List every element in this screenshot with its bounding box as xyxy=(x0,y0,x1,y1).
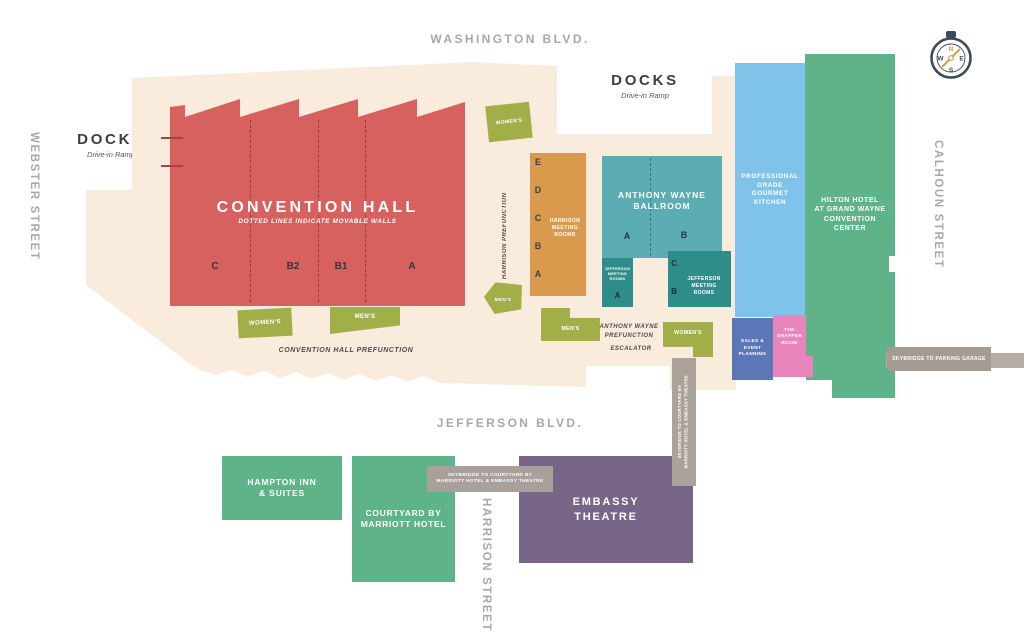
ballroom-section-b: B xyxy=(672,230,696,240)
womens-restroom-label: WOMEN'S xyxy=(495,117,522,127)
skybridge-courtyard-label: SKYBRIDGE TO COURTYARD BY MARRIOTT HOTEL… xyxy=(437,473,544,486)
kitchen-label: PROFESSIONAL GRADE GOURMET KITCHEN xyxy=(741,173,798,207)
gourmet-kitchen: PROFESSIONAL GRADE GOURMET KITCHEN xyxy=(735,63,805,317)
dock-tick xyxy=(161,165,183,167)
mens-restroom-label: MEN'S xyxy=(561,316,579,333)
ballroom-prefunction-label: ANTHONY WAYNE PREFUNCTION xyxy=(589,323,669,341)
sales-event-planning: SALES & EVENT PLANNING xyxy=(732,318,773,380)
womens-restroom-label: WOMEN'S xyxy=(249,318,281,328)
ballroom-title: ANTHONY WAYNE BALLROOM xyxy=(602,190,722,213)
embassy-theatre-label: EMBASSY THEATRE xyxy=(573,495,640,525)
jefferson-rooms-label: JEFFERSON MEETING ROOMS xyxy=(680,276,728,296)
hampton-inn: HAMPTON INN & SUITES xyxy=(222,456,342,520)
street-harrison: HARRISON STREET xyxy=(480,498,492,633)
skybridge-parking-label-box: SKYBRIDGE TO PARKING GARAGE xyxy=(887,347,991,371)
womens-restroom-label: WOMEN'S xyxy=(674,330,702,349)
docks-top-subtitle: Drive-in Ramp xyxy=(595,91,695,100)
hall-section-a: A xyxy=(397,261,427,272)
harrison-room-a: A xyxy=(531,269,545,279)
jefferson-room-a: A xyxy=(602,291,633,300)
hampton-inn-label: HAMPTON INN & SUITES xyxy=(247,477,316,500)
convention-hall-subtitle: DOTTED LINES INDICATE MOVABLE WALLS xyxy=(170,218,465,227)
courtyard-marriott-label: COURTYARD BY MARRIOTT HOTEL xyxy=(361,508,447,531)
skybridge-courtyard-label-box: SKYBRIDGE TO COURTYARD BY MARRIOTT HOTEL… xyxy=(427,466,553,492)
street-washington-blvd: WASHINGTON BLVD. xyxy=(420,32,600,46)
compass-w: W xyxy=(937,56,944,63)
shaffer-room-label: THE SHAFFER ROOM xyxy=(773,328,806,347)
convention-hall-prefunction-label: CONVENTION HALL PREFUNCTION xyxy=(246,347,446,354)
harrison-room-b: B xyxy=(531,241,545,251)
street-jefferson-blvd: JEFFERSON BLVD. xyxy=(430,416,590,430)
docks-top-title: DOCKS xyxy=(595,72,695,89)
skybridge-embassy-label: SKYBRIDGE TO COURTYARD BY MARRIOTT HOTEL… xyxy=(677,375,690,468)
hilton-label: HILTON HOTEL AT GRAND WAYNE CONVENTION C… xyxy=(806,196,894,234)
street-calhoun: CALHOUN STREET xyxy=(932,140,944,290)
mens-restroom-label: MEN'S xyxy=(355,313,376,327)
hall-section-b2: B2 xyxy=(278,261,308,272)
docks-top: DOCKS Drive-in Ramp xyxy=(595,72,695,100)
jefferson-room-b: B xyxy=(667,287,681,296)
hall-section-c: C xyxy=(200,261,230,272)
womens-restroom-hall: WOMEN'S xyxy=(237,308,292,339)
escalator-label: ESCALATOR xyxy=(591,346,671,352)
harrison-room-d: D xyxy=(531,185,545,195)
compass-knob xyxy=(946,31,956,38)
grand-wayne-convention-center-map: WASHINGTON BLVD. WEBSTER STREET CALHOUN … xyxy=(0,0,1024,633)
harrison-room-e: E xyxy=(531,157,545,167)
compass-hub xyxy=(949,56,954,61)
compass-s: S xyxy=(949,67,954,74)
skybridge-embassy: SKYBRIDGE TO COURTYARD BY MARRIOTT HOTEL… xyxy=(672,358,696,486)
dock-tick xyxy=(161,137,183,139)
compass-e: E xyxy=(959,56,964,63)
womens-restroom-top: WOMEN'S xyxy=(485,102,533,142)
jefferson-room-c: C xyxy=(667,259,681,268)
hall-section-b1: B1 xyxy=(326,261,356,272)
jefferson-meeting-rooms-a: JEFFERSON MEETING ROOMS A xyxy=(602,258,633,307)
ballroom-section-a: A xyxy=(615,231,639,241)
mens-restroom-label: MEN'S xyxy=(495,290,512,304)
convention-hall-title: CONVENTION HALL xyxy=(170,197,465,219)
street-webster: WEBSTER STREET xyxy=(28,132,40,282)
compass-rose: N W E S xyxy=(925,26,977,84)
compass-n: N xyxy=(949,46,954,53)
harrison-rooms-label: HARRISON MEETING ROOMS xyxy=(543,218,587,239)
skybridge-parking-label: SKYBRIDGE TO PARKING GARAGE xyxy=(892,356,985,363)
sales-event-label: SALES & EVENT PLANNING xyxy=(739,339,767,358)
jefferson-rooms-label: JEFFERSON MEETING ROOMS xyxy=(602,267,633,282)
